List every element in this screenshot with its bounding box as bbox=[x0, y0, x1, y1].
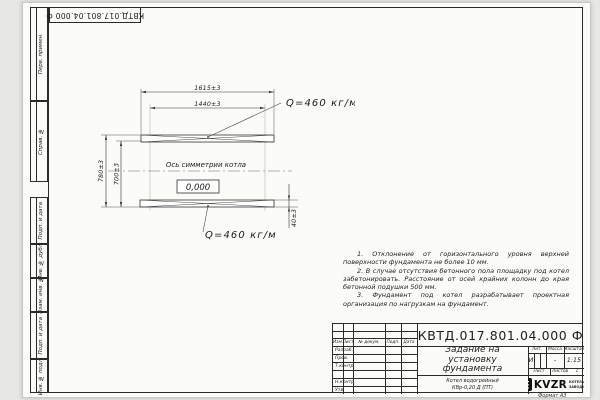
top-doc-number-stamp: КВТД.017.801.04.000 Ф bbox=[49, 7, 141, 23]
margin-label: Инв. № дубл. bbox=[38, 242, 44, 280]
foundation-drawing: 1615±3 1440±3 780±3 700±3 40±3 Ось симме… bbox=[85, 80, 355, 260]
cell-divider bbox=[36, 198, 37, 243]
tb-massa-value: - bbox=[546, 353, 564, 368]
margin-label: Инв. № подл. bbox=[38, 357, 44, 395]
tb-title: Задание на установку фундамента bbox=[417, 346, 528, 375]
company-logo: KVZR КОТЕЛЬНЫЙ ЗАВОД РЭП bbox=[528, 378, 584, 391]
margin-cell-vzam-inv: Взам. инв. № bbox=[30, 278, 48, 312]
margin-cell-podp-data-2: Подп. и дата bbox=[30, 312, 48, 359]
format-label: Формат А3 bbox=[538, 393, 566, 399]
tb-lit-value: И bbox=[528, 353, 534, 368]
tb-row-prov: Пров. bbox=[333, 354, 353, 362]
tb-list-label: Лист bbox=[528, 368, 550, 375]
margin-label: Подп. и дата bbox=[38, 317, 44, 354]
tb-masshtab-label: Масштаб bbox=[564, 346, 584, 353]
tb-row-utv: Утв. bbox=[333, 386, 353, 394]
tb-product-line2: КВр-0,20 Д (ПТ) bbox=[446, 385, 499, 391]
tb-row-tkontr: Т.контр. bbox=[333, 362, 353, 370]
tb-row-razrab: Разраб. bbox=[333, 346, 353, 354]
margin-label: Взам. инв. № bbox=[38, 276, 44, 314]
tb-listov-label: Листов bbox=[550, 368, 570, 375]
title-block: Изм. Лист № докум. Подп. Дата Разраб. Пр… bbox=[332, 323, 583, 393]
load-label-bottom: Q=460 кг/м bbox=[205, 230, 277, 241]
tb-masshtab-value: 1:15 bbox=[564, 353, 584, 368]
tb-row-nkontr: Н.контр. bbox=[333, 378, 353, 386]
margin-cell-podp-data-1: Подп. и дата bbox=[30, 197, 48, 244]
tb-header-podp: Подп. bbox=[385, 338, 401, 346]
cell-divider bbox=[36, 360, 37, 392]
drawing-page: { "doc_number": "КВТД.017.801.04.000 Ф",… bbox=[0, 0, 600, 400]
margin-cell-perv-primen: Перв. примен. bbox=[30, 7, 48, 101]
load-label-top: Q=460 кг/м bbox=[286, 98, 355, 109]
margin-label: Перв. примен. bbox=[38, 33, 44, 74]
tb-doc-number: КВТД.017.801.04.000 Ф bbox=[417, 324, 584, 346]
cell-divider bbox=[36, 313, 37, 358]
dim-700: 700±3 bbox=[114, 163, 121, 185]
note-1: 1. Отклонение от горизонтального уровня … bbox=[343, 250, 569, 267]
logo-text: KVZR bbox=[534, 379, 567, 391]
tb-header-list: Лист bbox=[343, 338, 353, 346]
tb-massa-label: Масса bbox=[546, 346, 564, 353]
elevation-value: 0,000 bbox=[186, 183, 210, 193]
spring-icon bbox=[528, 378, 532, 391]
cell-divider bbox=[36, 102, 37, 181]
tb-logo-cell: KVZR КОТЕЛЬНЫЙ ЗАВОД РЭП bbox=[528, 375, 584, 394]
technical-notes: 1. Отклонение от горизонтального уровня … bbox=[343, 250, 569, 308]
tb-header-data: Дата bbox=[401, 338, 417, 346]
tb-header-doc: № докум. bbox=[353, 338, 385, 346]
dim-780: 780±3 bbox=[98, 160, 105, 182]
margin-cell-sprav-no: Справ. № bbox=[30, 101, 48, 182]
top-doc-number-text: КВТД.017.801.04.000 Ф bbox=[46, 11, 144, 20]
logo-sub-line2: ЗАВОД РЭП bbox=[569, 385, 584, 389]
note-3: 3. Фундамент под котел разрабатывает про… bbox=[343, 291, 569, 308]
tb-header-izm: Изм. bbox=[333, 338, 343, 346]
tb-title-line3: фундамента bbox=[443, 365, 503, 375]
dim-40: 40±3 bbox=[291, 209, 298, 227]
cell-divider bbox=[36, 279, 37, 311]
cell-divider bbox=[36, 8, 37, 100]
note-2: 2. В случае отсутствия бетонного пола пл… bbox=[343, 267, 569, 292]
margin-label: Подп. и дата bbox=[38, 202, 44, 239]
tb-listov-value: 1 bbox=[570, 368, 584, 375]
margin-cell-inv-dubl: Инв. № дубл. bbox=[30, 244, 48, 278]
cell-divider bbox=[36, 245, 37, 277]
axis-label: Ось симметрии котла bbox=[166, 161, 246, 169]
tb-product: Котел водогрейный КВр-0,20 Д (ПТ) bbox=[417, 375, 528, 394]
dim-1440: 1440±3 bbox=[194, 101, 221, 108]
tb-doc-number-text: КВТД.017.801.04.000 Ф bbox=[418, 328, 584, 343]
tb-product-line1: Котел водогрейный bbox=[446, 378, 499, 384]
margin-label: Справ. № bbox=[38, 128, 44, 155]
tb-lit-label: Лит. bbox=[528, 346, 546, 353]
logo-sub-line1: КОТЕЛЬНЫЙ bbox=[569, 380, 584, 384]
dim-1615: 1615±3 bbox=[194, 85, 221, 92]
margin-cell-inv-podl: Инв. № подл. bbox=[30, 359, 48, 393]
